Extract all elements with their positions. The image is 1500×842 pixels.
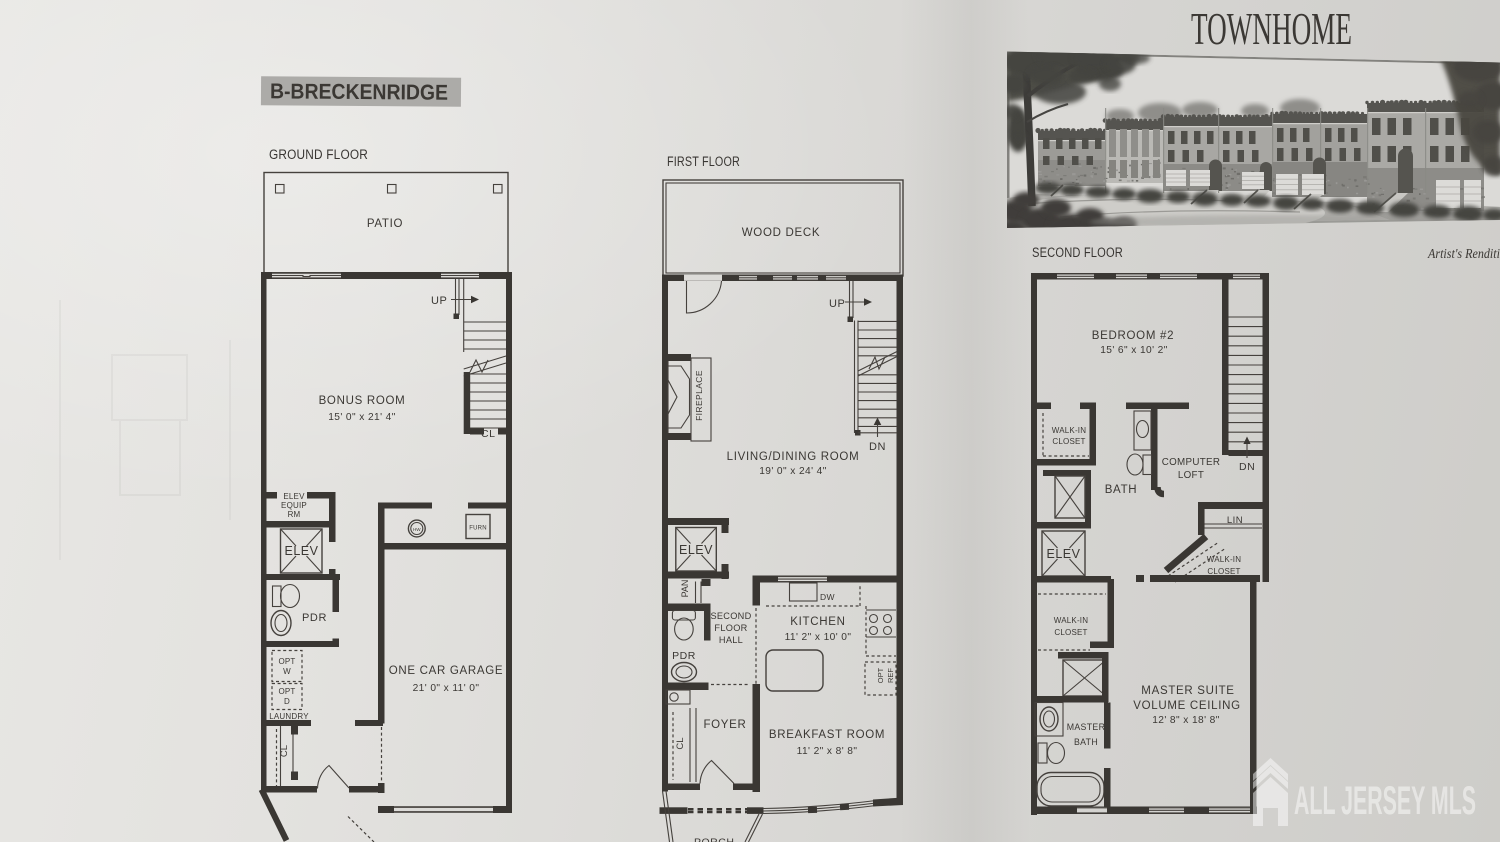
svg-text:WALK-IN: WALK-IN — [1052, 426, 1086, 435]
svg-text:EQUIP: EQUIP — [281, 501, 307, 510]
svg-text:CL: CL — [481, 428, 495, 440]
svg-text:D: D — [284, 697, 290, 706]
svg-text:ONE CAR GARAGE: ONE CAR GARAGE — [389, 665, 504, 677]
svg-text:BREAKFAST ROOM: BREAKFAST ROOM — [769, 729, 885, 741]
svg-text:BATH: BATH — [1105, 484, 1138, 496]
svg-text:SECOND FLOOR: SECOND FLOOR — [1032, 245, 1123, 260]
svg-text:Artist's Renditio: Artist's Renditio — [1427, 246, 1500, 261]
svg-text:SECOND: SECOND — [710, 611, 751, 621]
svg-text:OPT: OPT — [876, 667, 885, 683]
svg-text:FOYER: FOYER — [703, 719, 746, 731]
svg-text:ELEV: ELEV — [285, 544, 319, 558]
svg-text:19' 0" x 24' 4": 19' 0" x 24' 4" — [759, 466, 827, 477]
svg-text:LIN: LIN — [1227, 515, 1243, 526]
svg-text:WALK-IN: WALK-IN — [1054, 616, 1088, 625]
svg-text:W: W — [283, 667, 291, 676]
svg-text:11' 2" x 10' 0": 11' 2" x 10' 0" — [785, 632, 852, 643]
svg-text:REF: REF — [886, 668, 895, 683]
svg-text:DN: DN — [869, 441, 886, 453]
svg-text:BONUS ROOM: BONUS ROOM — [319, 395, 406, 407]
svg-text:ELEV: ELEV — [1047, 547, 1081, 561]
svg-text:BEDROOM #2: BEDROOM #2 — [1092, 330, 1174, 342]
svg-text:CL: CL — [279, 745, 290, 757]
svg-text:PAN: PAN — [680, 580, 690, 598]
svg-text:B-BRECKENRIDGE: B-BRECKENRIDGE — [270, 79, 448, 104]
svg-text:UP: UP — [431, 295, 447, 307]
svg-text:15' 6" x 10' 2": 15' 6" x 10' 2" — [1100, 345, 1168, 356]
svg-text:11' 2" x 8' 8": 11' 2" x 8' 8" — [797, 746, 858, 757]
svg-text:CL: CL — [675, 737, 686, 749]
svg-text:GROUND FLOOR: GROUND FLOOR — [269, 147, 368, 162]
svg-text:HALL: HALL — [719, 635, 743, 645]
svg-text:CLOSET: CLOSET — [1207, 567, 1240, 576]
svg-text:ALL JERSEY MLS: ALL JERSEY MLS — [1294, 779, 1476, 823]
svg-text:WALK-IN: WALK-IN — [1207, 555, 1241, 564]
svg-text:FIRST FLOOR: FIRST FLOOR — [667, 154, 740, 169]
svg-text:OPT: OPT — [278, 657, 295, 666]
svg-text:MASTER: MASTER — [1067, 722, 1105, 732]
svg-text:VOLUME CEILING: VOLUME CEILING — [1133, 700, 1241, 712]
svg-text:MASTER SUITE: MASTER SUITE — [1141, 685, 1234, 697]
svg-text:OPT: OPT — [278, 687, 295, 696]
svg-text:DN: DN — [1239, 461, 1255, 473]
svg-text:FIREPLACE: FIREPLACE — [694, 370, 704, 421]
svg-text:ELEV: ELEV — [679, 543, 713, 557]
svg-text:12' 8" x 18' 8": 12' 8" x 18' 8" — [1152, 715, 1220, 726]
svg-text:LIVING/DINING ROOM: LIVING/DINING ROOM — [727, 451, 860, 463]
svg-text:ELEV: ELEV — [283, 492, 305, 501]
svg-text:TOWNHOME: TOWNHOME — [1191, 3, 1352, 54]
svg-text:WOOD DECK: WOOD DECK — [742, 227, 821, 239]
svg-text:PDR: PDR — [672, 650, 696, 662]
svg-text:15' 0" x 21' 4": 15' 0" x 21' 4" — [328, 412, 396, 423]
svg-text:DW: DW — [820, 592, 835, 602]
svg-text:HW: HW — [413, 527, 421, 532]
svg-text:UP: UP — [829, 298, 845, 310]
svg-text:RM: RM — [288, 510, 301, 519]
svg-text:LOFT: LOFT — [1178, 470, 1204, 481]
svg-text:KITCHEN: KITCHEN — [790, 616, 845, 628]
svg-text:LAUNDRY: LAUNDRY — [269, 712, 309, 721]
svg-text:PATIO: PATIO — [367, 218, 403, 230]
svg-text:CLOSET: CLOSET — [1054, 628, 1087, 637]
svg-text:21' 0" x 11' 0": 21' 0" x 11' 0" — [413, 683, 480, 694]
svg-text:PDR: PDR — [302, 612, 327, 624]
svg-text:COMPUTER: COMPUTER — [1162, 457, 1220, 468]
svg-text:FLOOR: FLOOR — [714, 623, 747, 633]
svg-text:BATH: BATH — [1074, 737, 1098, 747]
svg-text:PORCH: PORCH — [694, 837, 734, 842]
svg-text:CLOSET: CLOSET — [1052, 437, 1085, 446]
svg-text:FURN: FURN — [469, 526, 486, 532]
